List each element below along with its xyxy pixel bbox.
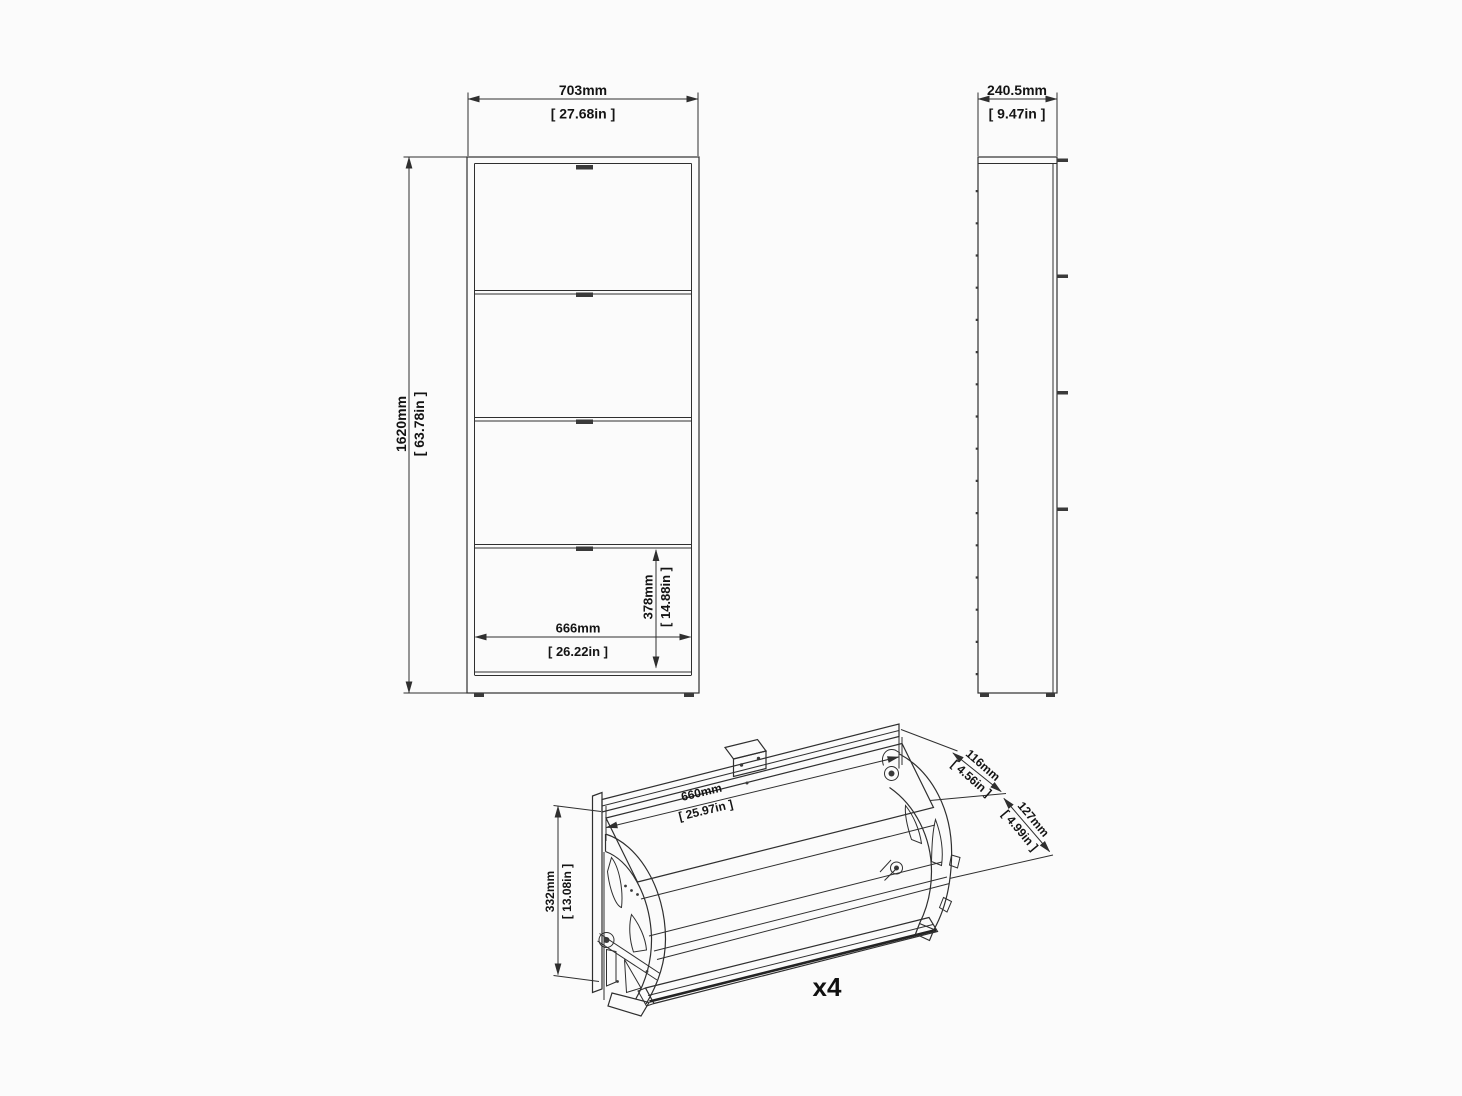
dimension-label-mm: 378mm	[641, 575, 656, 620]
bracket-cutout	[607, 950, 617, 987]
cabinet-foot	[1046, 693, 1055, 697]
side-depth-dimension: 240.5mm [ 9.47in ]	[978, 82, 1057, 156]
dimension-label-mm: 1620mm	[393, 396, 409, 452]
cabinet-foot	[684, 693, 694, 697]
extension-line	[950, 855, 1054, 879]
dimension-label-inch: [ 27.68in ]	[551, 106, 616, 122]
shoe-cabinet-dimension-drawing: 703mm [ 27.68in ] 1620mm [ 63.78in ] 666…	[0, 0, 1462, 1096]
dimension-label-inch: [ 13.08in ]	[560, 864, 574, 919]
wall-plate	[593, 793, 603, 993]
drawer-lip	[1057, 275, 1069, 279]
extension-line	[901, 730, 958, 752]
dimension-label-inch: [ 63.78in ]	[411, 392, 427, 457]
cabinet-side-outline	[978, 157, 1057, 693]
bracket-cutout	[630, 915, 647, 953]
pivot-pin	[889, 771, 895, 777]
side-view: 240.5mm [ 9.47in ]	[977, 82, 1068, 697]
dimension-label-mm: 666mm	[556, 621, 601, 636]
drawer-handle-notch	[576, 293, 593, 298]
technical-drawing-page: 703mm [ 27.68in ] 1620mm [ 63.78in ] 666…	[0, 0, 1462, 1096]
bottom-panel-heavy-edge	[650, 930, 937, 1002]
mounting-clip-front	[734, 751, 767, 777]
tray-edge	[641, 825, 935, 899]
drawer-lip	[1057, 159, 1069, 163]
dimension-label-mm: 703mm	[559, 82, 607, 98]
flap-panel	[606, 744, 934, 883]
bottom-panel-inner-line	[648, 925, 933, 996]
screw-hole	[630, 889, 633, 892]
bracket-cutout	[608, 858, 622, 908]
left-side-bracket	[598, 834, 666, 1016]
front-height-dimension: 1620mm [ 63.78in ]	[393, 157, 467, 693]
front-compartment-height-dimension: 378mm [ 14.88in ]	[641, 550, 674, 668]
drawer-unit-body	[593, 724, 961, 1016]
front-width-dimension: 703mm [ 27.68in ]	[468, 82, 698, 156]
dimension-label-mm: 240.5mm	[987, 82, 1047, 98]
dimension-label-inch: [ 14.88in ]	[658, 567, 673, 627]
screw-hole	[636, 893, 639, 896]
side-view-cabinet	[977, 157, 1068, 697]
bracket-outer-arc	[900, 754, 952, 930]
front-view: 703mm [ 27.68in ] 1620mm [ 63.78in ] 666…	[393, 82, 699, 697]
clip-screw	[757, 757, 760, 760]
drawer-lip	[1057, 508, 1069, 512]
panel-screw	[746, 782, 749, 785]
cabinet-foot	[980, 693, 989, 697]
right-side-bracket	[880, 737, 960, 941]
drawer-lip	[1057, 391, 1069, 395]
screw-hole	[624, 885, 627, 888]
shelf-front-edge	[657, 884, 950, 960]
unit-upper-depth-dimension: 116mm [ 4.56in ]	[901, 730, 1006, 801]
bracket-inner-arc	[890, 788, 932, 924]
dimension-label-inch: [ 26.22in ]	[548, 644, 608, 659]
quantity-label: x4	[813, 972, 842, 1002]
bracket-cutout	[932, 820, 943, 866]
screw-hole	[616, 980, 619, 983]
extension-line	[930, 794, 1006, 801]
screw-hole	[646, 970, 649, 973]
clip-screw	[740, 763, 743, 766]
dimension-label-mm: 332mm	[543, 871, 557, 912]
bracket-inner-arc	[606, 852, 652, 1000]
drawer-handle-notch	[576, 165, 593, 170]
dimension-label-inch: [ 9.47in ]	[989, 106, 1046, 122]
unit-lower-depth-dimension: 127mm [ 4.99in ]	[950, 796, 1055, 878]
extension-line	[554, 806, 602, 812]
drawer-unit-isometric: 660mm [ 25.97in ] 332mm [ 13.08in ] 116m…	[543, 724, 1054, 1016]
drawer-handle-notch	[576, 547, 593, 552]
cabinet-foot	[474, 693, 484, 697]
drawer-handle-notch	[576, 420, 593, 425]
bracket-foot	[608, 993, 649, 1016]
inner-bracket-line	[880, 860, 891, 872]
